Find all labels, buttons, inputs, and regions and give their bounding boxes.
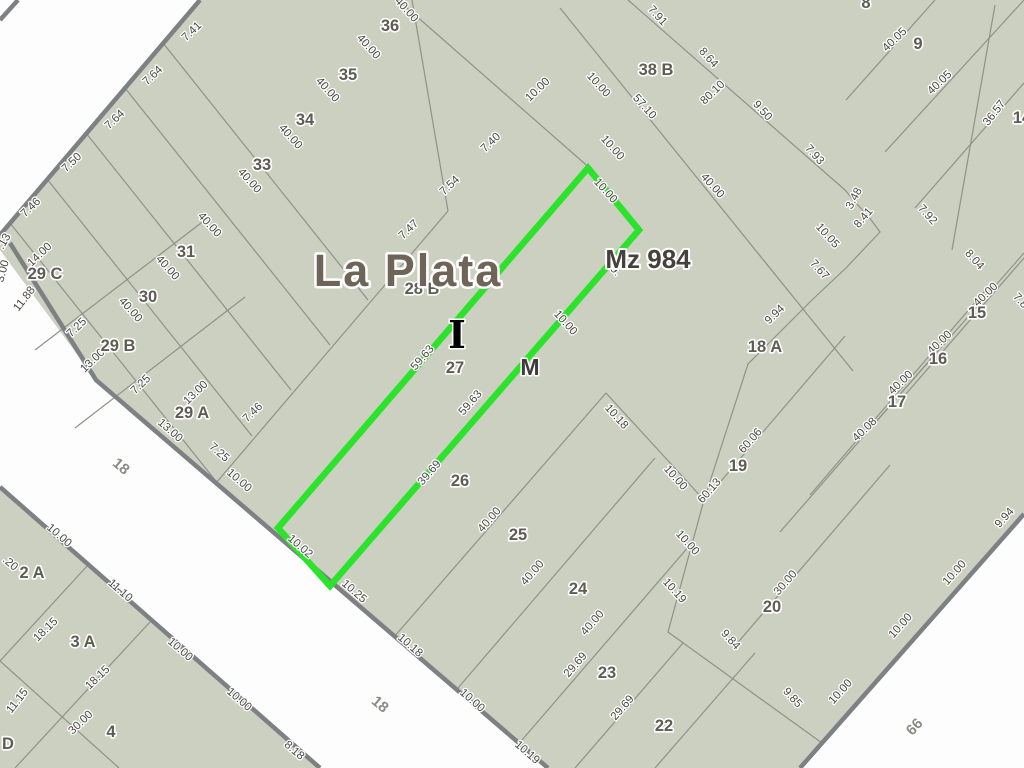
parcel-number: 4 (106, 723, 116, 741)
parcel-number: 34 (296, 111, 315, 129)
parcel-number: 14 (1013, 109, 1024, 127)
city-title: La Plata (314, 245, 503, 296)
map-canvas: 7.417.647.647.507.46.133.0014.0011.887.2… (0, 0, 1024, 768)
parcel-number: 15 (968, 304, 986, 322)
letter-m-marker: M (520, 354, 539, 380)
parcel-number: 18 A (748, 338, 782, 356)
parcel-number: 38 B (639, 61, 674, 79)
block-label: Mz 984 (605, 244, 691, 274)
parcel-number: 31 (177, 243, 195, 261)
parcel-number: 24 (569, 580, 588, 598)
parcel-number: 23 (598, 664, 616, 682)
parcel-number: 25 (509, 526, 527, 544)
parcel-number: 27 (446, 359, 464, 377)
parcel-number: 29 A (175, 404, 209, 422)
parcel-number: 30 (139, 288, 157, 306)
parcel-number: 29 B (101, 337, 136, 355)
parcel-number: 9 (913, 35, 922, 53)
parcel-number: 26 (451, 472, 469, 490)
letter-i-marker: I (448, 312, 466, 357)
parcel-number: 20 (763, 598, 781, 616)
parcel-number: 19 (729, 457, 747, 475)
parcel-number: 22 (655, 717, 673, 735)
parcel-number: 8 (861, 0, 870, 12)
cadastral-map[interactable]: 7.417.647.647.507.46.133.0014.0011.887.2… (0, 0, 1024, 768)
parcel-number: 2 A (19, 564, 44, 582)
parcel-number: 36 (381, 17, 399, 35)
map-background (0, 0, 1024, 768)
parcel-number: 35 (339, 66, 357, 84)
parcel-number: 16 (929, 350, 947, 368)
parcel-number: 33 (253, 156, 271, 174)
parcel-number: 3 A (70, 633, 95, 651)
parcel-number: D (2, 735, 14, 753)
parcel-number: 17 (888, 393, 906, 411)
parcel-number: 29 C (28, 265, 63, 283)
